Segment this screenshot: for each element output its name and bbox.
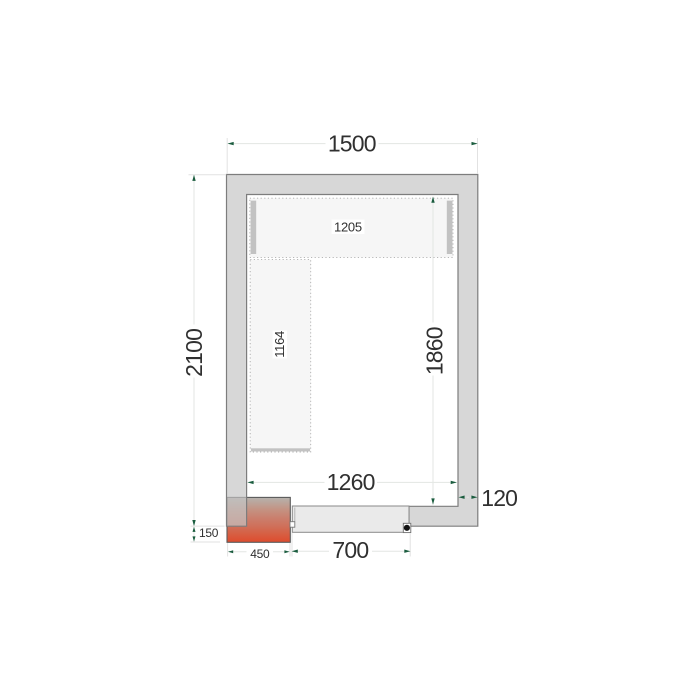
svg-text:2100: 2100: [181, 329, 207, 377]
svg-text:1860: 1860: [422, 327, 448, 375]
svg-text:1205: 1205: [334, 219, 362, 234]
svg-text:120: 120: [481, 485, 517, 511]
svg-text:1164: 1164: [272, 331, 287, 358]
svg-text:1260: 1260: [327, 469, 375, 495]
svg-text:450: 450: [250, 547, 270, 561]
svg-text:700: 700: [332, 537, 368, 563]
svg-text:1500: 1500: [328, 131, 376, 157]
svg-text:150: 150: [199, 526, 219, 540]
